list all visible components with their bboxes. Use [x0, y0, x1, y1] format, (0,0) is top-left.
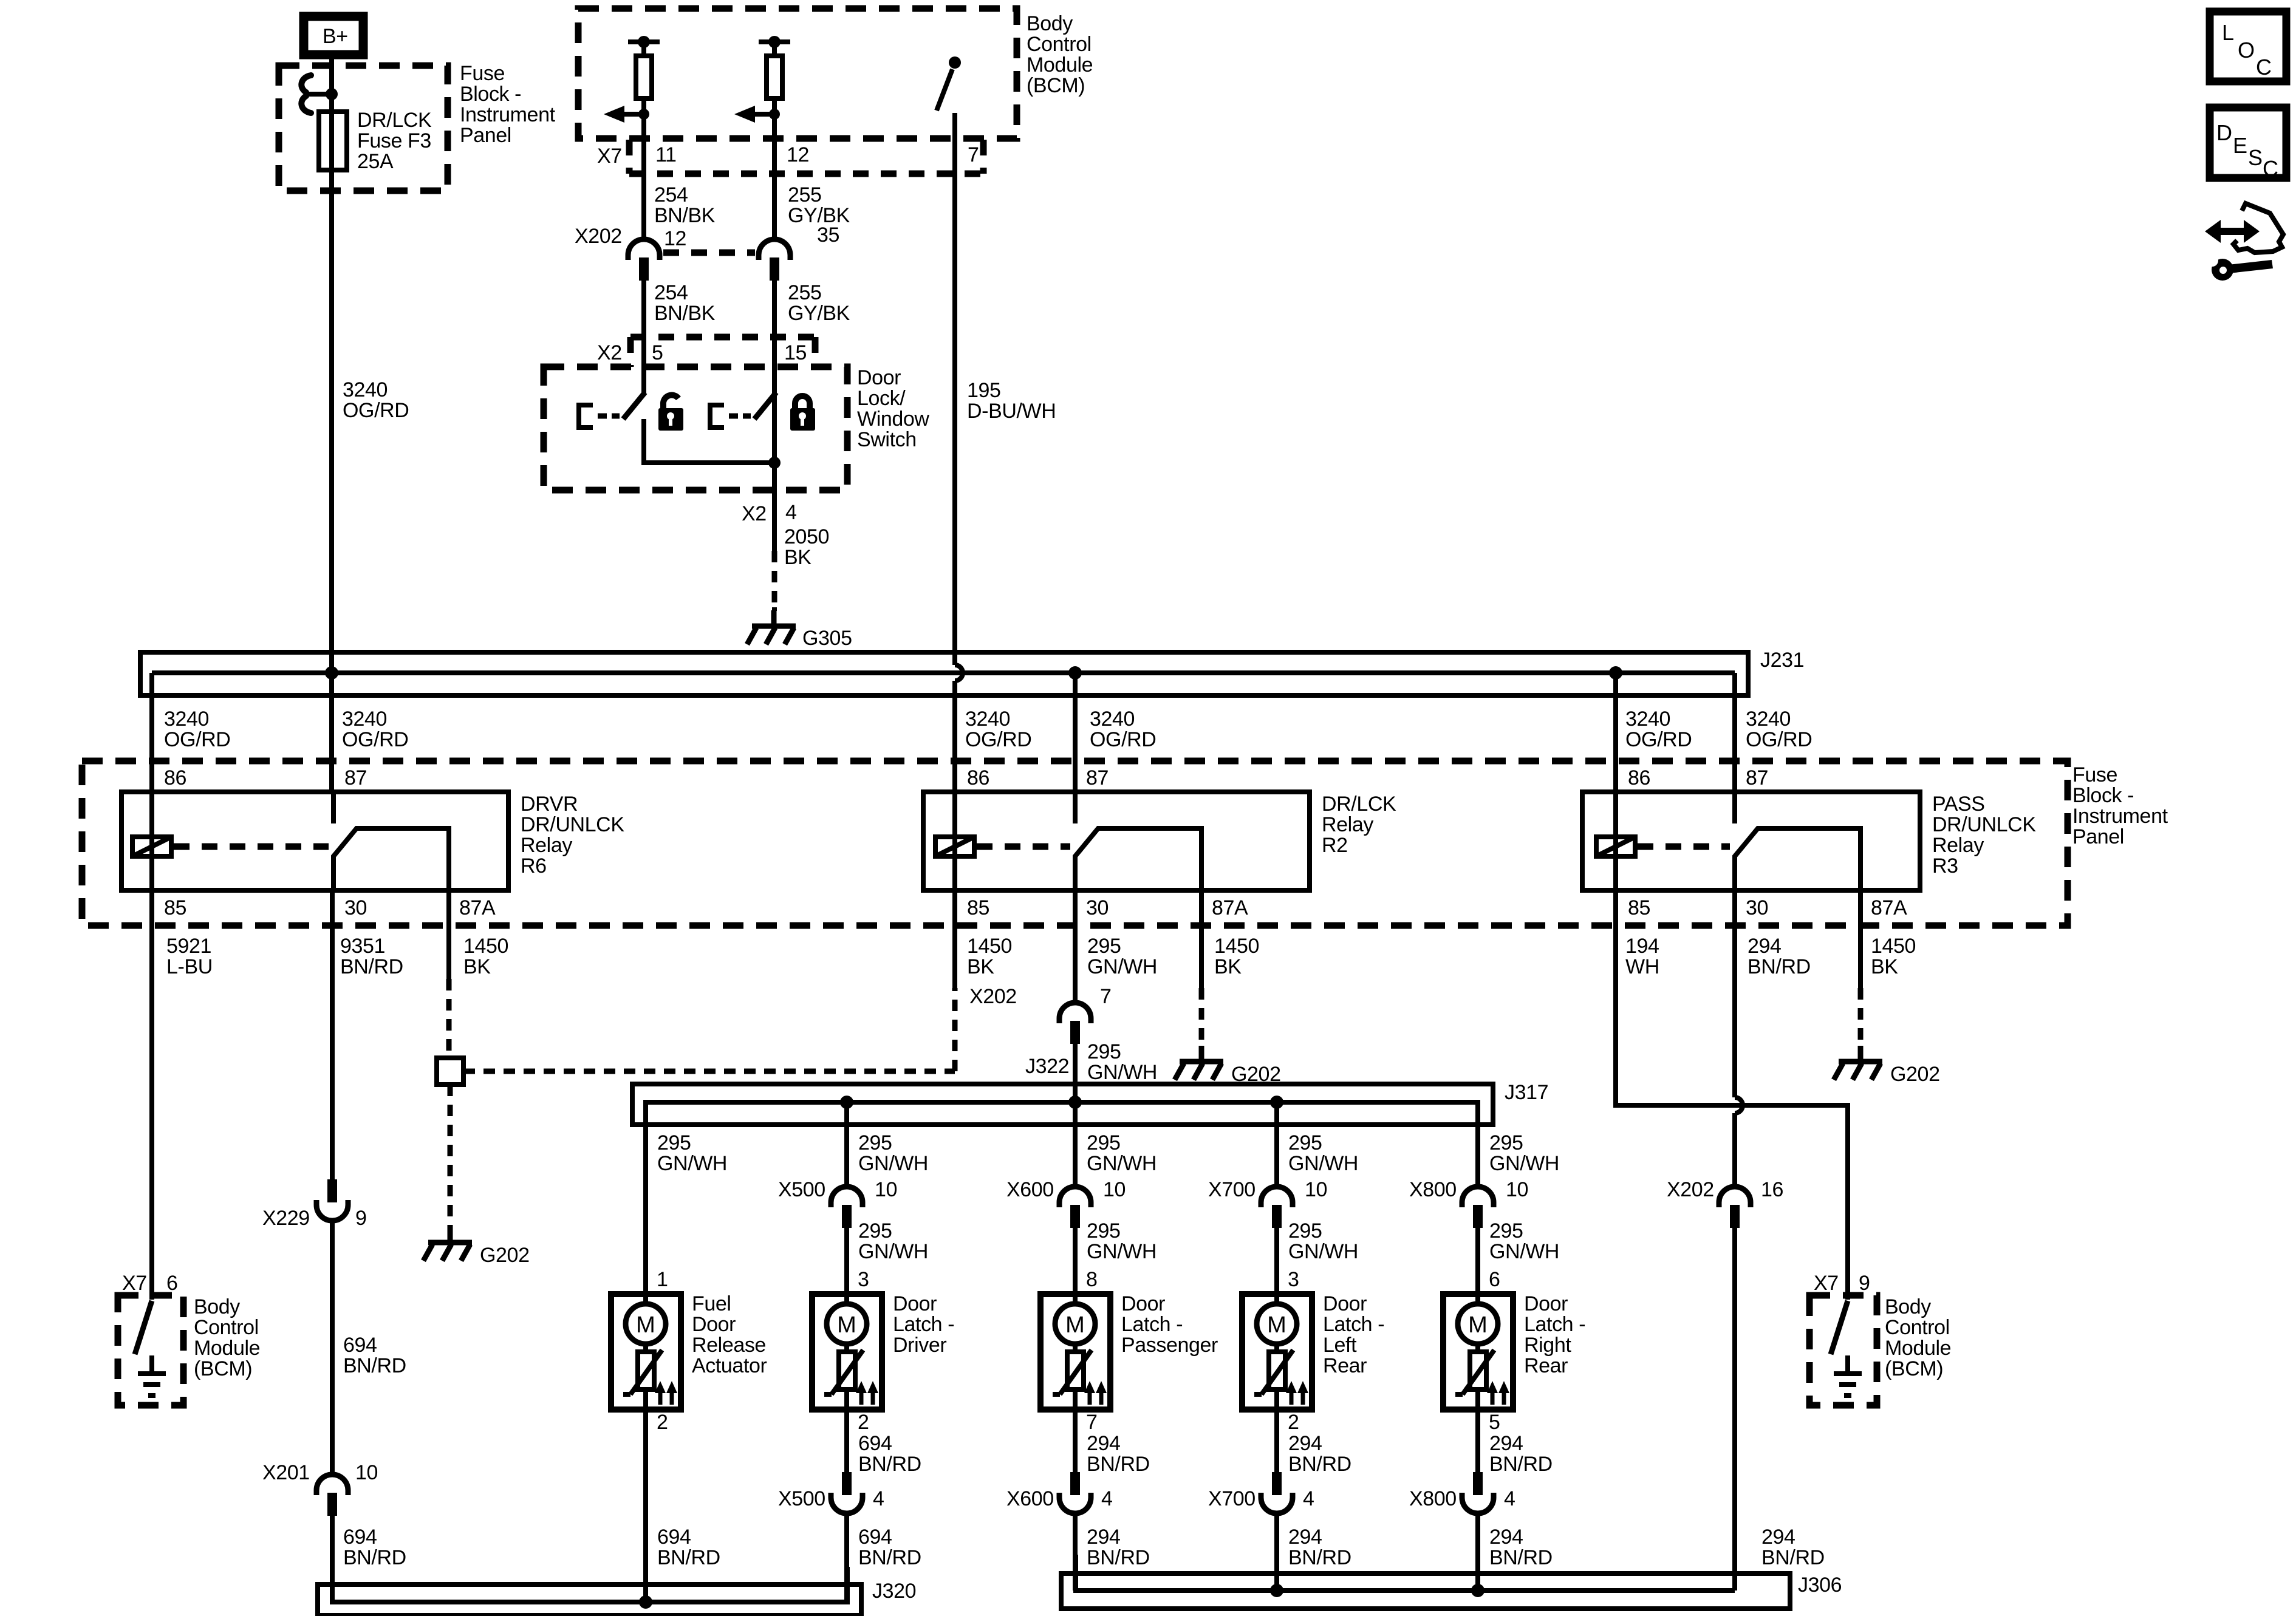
svg-text:Module: Module — [194, 1337, 260, 1360]
svg-text:B+: B+ — [323, 25, 348, 48]
svg-text:86: 86 — [164, 766, 186, 789]
svg-text:BN/RD: BN/RD — [858, 1453, 921, 1476]
svg-text:L: L — [2222, 20, 2234, 45]
svg-text:(BCM): (BCM) — [194, 1357, 252, 1380]
svg-text:6: 6 — [166, 1272, 178, 1295]
svg-text:Fuse: Fuse — [460, 62, 505, 85]
svg-text:G305: G305 — [802, 627, 852, 650]
svg-text:295: 295 — [1087, 1131, 1121, 1154]
svg-text:Right: Right — [1524, 1334, 1571, 1357]
svg-text:X7: X7 — [597, 145, 622, 168]
svg-text:295: 295 — [1087, 935, 1121, 958]
svg-text:694: 694 — [343, 1334, 377, 1357]
svg-text:(BCM): (BCM) — [1885, 1357, 1943, 1380]
svg-text:87: 87 — [1086, 766, 1109, 789]
svg-text:Switch: Switch — [857, 428, 917, 451]
svg-text:BN/RD: BN/RD — [1087, 1453, 1150, 1476]
svg-text:7: 7 — [968, 143, 979, 166]
svg-text:BK: BK — [1214, 955, 1242, 978]
svg-text:Panel: Panel — [2072, 825, 2124, 848]
svg-text:3: 3 — [858, 1268, 869, 1291]
svg-text:7: 7 — [1086, 1411, 1098, 1434]
svg-text:Door: Door — [893, 1292, 937, 1315]
svg-text:X500: X500 — [778, 1487, 825, 1510]
svg-text:WH: WH — [1625, 955, 1659, 978]
svg-text:295: 295 — [1288, 1219, 1322, 1243]
svg-text:BN/BK: BN/BK — [654, 302, 716, 325]
svg-text:BK: BK — [1871, 955, 1898, 978]
svg-text:BK: BK — [967, 955, 994, 978]
svg-text:295: 295 — [1288, 1131, 1322, 1154]
svg-text:C: C — [2256, 55, 2272, 80]
svg-text:Latch -: Latch - — [1524, 1313, 1585, 1336]
svg-text:X2: X2 — [742, 502, 767, 525]
svg-text:Driver: Driver — [893, 1334, 946, 1357]
svg-text:GN/WH: GN/WH — [858, 1240, 928, 1263]
svg-text:GN/WH: GN/WH — [1489, 1152, 1559, 1175]
svg-text:GN/WH: GN/WH — [1087, 1240, 1157, 1263]
svg-text:30: 30 — [344, 896, 367, 919]
svg-text:195: 195 — [967, 379, 1001, 402]
svg-text:10: 10 — [355, 1461, 378, 1484]
svg-text:X600: X600 — [1006, 1178, 1054, 1201]
svg-text:16: 16 — [1761, 1178, 1783, 1201]
svg-text:87A: 87A — [459, 896, 496, 919]
svg-text:GN/WH: GN/WH — [858, 1152, 928, 1175]
svg-text:4: 4 — [1504, 1487, 1515, 1510]
svg-text:X2: X2 — [597, 341, 622, 364]
svg-text:255: 255 — [788, 183, 822, 206]
svg-text:194: 194 — [1625, 935, 1659, 958]
svg-text:J306: J306 — [1798, 1573, 1842, 1597]
svg-text:35: 35 — [817, 223, 839, 247]
svg-text:87: 87 — [344, 766, 367, 789]
svg-text:Relay: Relay — [1322, 813, 1373, 836]
svg-text:OG/RD: OG/RD — [965, 728, 1031, 751]
svg-text:Instrument: Instrument — [460, 103, 556, 126]
svg-text:86: 86 — [1628, 766, 1650, 789]
svg-text:Fuse: Fuse — [2072, 763, 2117, 786]
svg-text:M: M — [1267, 1312, 1286, 1338]
svg-text:OG/RD: OG/RD — [1746, 728, 1812, 751]
svg-text:9351: 9351 — [340, 935, 385, 958]
svg-text:DR/LCK: DR/LCK — [1322, 793, 1396, 816]
svg-text:X202: X202 — [575, 225, 622, 248]
svg-text:694: 694 — [858, 1432, 892, 1455]
svg-text:294: 294 — [1087, 1432, 1121, 1455]
svg-text:X700: X700 — [1208, 1178, 1256, 1201]
svg-text:694: 694 — [343, 1526, 377, 1549]
svg-text:OG/RD: OG/RD — [1090, 728, 1156, 751]
svg-text:BN/RD: BN/RD — [1761, 1546, 1825, 1569]
svg-text:15: 15 — [784, 341, 807, 364]
svg-text:Relay: Relay — [1932, 834, 1984, 857]
svg-text:D-BU/WH: D-BU/WH — [967, 400, 1056, 423]
svg-text:X500: X500 — [778, 1178, 825, 1201]
svg-text:294: 294 — [1288, 1432, 1322, 1455]
svg-text:BN/RD: BN/RD — [1288, 1453, 1351, 1476]
svg-text:25A: 25A — [357, 150, 394, 173]
svg-text:X7: X7 — [1814, 1272, 1839, 1295]
svg-text:85: 85 — [164, 896, 186, 919]
svg-text:Module: Module — [1027, 53, 1093, 77]
svg-text:Module: Module — [1885, 1337, 1951, 1360]
svg-text:Door: Door — [1323, 1292, 1367, 1315]
svg-text:J320: J320 — [872, 1580, 916, 1603]
svg-text:7: 7 — [1100, 985, 1112, 1008]
svg-text:BN/RD: BN/RD — [343, 1546, 406, 1569]
svg-text:OG/RD: OG/RD — [342, 728, 408, 751]
svg-text:BN/RD: BN/RD — [1489, 1453, 1553, 1476]
svg-text:3240: 3240 — [1090, 707, 1135, 731]
svg-text:5921: 5921 — [166, 935, 211, 958]
svg-text:Lock/: Lock/ — [857, 387, 906, 410]
svg-text:3240: 3240 — [342, 707, 387, 731]
svg-text:86: 86 — [967, 766, 989, 789]
svg-text:BN/RD: BN/RD — [657, 1546, 720, 1569]
svg-text:3: 3 — [1288, 1268, 1299, 1291]
svg-text:Block -: Block - — [2072, 784, 2134, 807]
svg-text:M: M — [1468, 1312, 1488, 1338]
svg-text:11: 11 — [655, 143, 677, 166]
svg-text:Fuel: Fuel — [692, 1292, 731, 1315]
svg-text:87: 87 — [1746, 766, 1768, 789]
svg-text:OG/RD: OG/RD — [164, 728, 230, 751]
svg-text:10: 10 — [875, 1178, 897, 1201]
svg-text:295: 295 — [858, 1219, 892, 1243]
svg-text:G202: G202 — [1890, 1063, 1940, 1086]
svg-text:295: 295 — [1087, 1040, 1121, 1063]
svg-text:87A: 87A — [1871, 896, 1907, 919]
svg-text:8: 8 — [1086, 1268, 1098, 1291]
svg-text:Control: Control — [1885, 1316, 1950, 1339]
svg-text:Fuse F3: Fuse F3 — [357, 129, 431, 152]
svg-text:Control: Control — [194, 1316, 259, 1339]
svg-text:G202: G202 — [480, 1244, 530, 1267]
svg-text:Instrument: Instrument — [2072, 805, 2168, 828]
svg-text:Relay: Relay — [521, 834, 572, 857]
svg-text:BN/BK: BN/BK — [654, 204, 716, 227]
svg-text:9: 9 — [355, 1207, 367, 1230]
svg-text:3240: 3240 — [343, 378, 388, 401]
svg-text:85: 85 — [1628, 896, 1650, 919]
svg-text:Door: Door — [857, 366, 901, 389]
svg-text:BN/RD: BN/RD — [1489, 1546, 1553, 1569]
svg-text:294: 294 — [1489, 1432, 1523, 1455]
svg-text:X800: X800 — [1409, 1487, 1457, 1510]
svg-text:3240: 3240 — [164, 707, 209, 731]
svg-text:4: 4 — [785, 501, 797, 524]
svg-text:M: M — [1065, 1312, 1085, 1338]
svg-text:BN/RD: BN/RD — [1288, 1546, 1351, 1569]
svg-text:30: 30 — [1746, 896, 1768, 919]
svg-text:GN/WH: GN/WH — [1087, 1152, 1157, 1175]
svg-text:294: 294 — [1748, 935, 1782, 958]
svg-text:GN/WH: GN/WH — [1288, 1152, 1358, 1175]
svg-text:1450: 1450 — [967, 935, 1012, 958]
svg-text:J231: J231 — [1760, 649, 1804, 672]
svg-text:Latch -: Latch - — [1323, 1313, 1384, 1336]
svg-text:10: 10 — [1103, 1178, 1126, 1201]
svg-text:R2: R2 — [1322, 834, 1348, 857]
svg-text:1450: 1450 — [1214, 935, 1259, 958]
svg-text:X7: X7 — [122, 1272, 147, 1295]
svg-text:6: 6 — [1489, 1268, 1500, 1291]
svg-text:BK: BK — [784, 546, 811, 569]
svg-text:4: 4 — [1101, 1487, 1113, 1510]
svg-text:DR/LCK: DR/LCK — [357, 109, 432, 132]
svg-text:GN/WH: GN/WH — [1087, 1061, 1157, 1084]
svg-text:Body: Body — [1885, 1295, 1931, 1318]
svg-text:2: 2 — [657, 1411, 668, 1434]
svg-text:BN/RD: BN/RD — [343, 1354, 406, 1377]
svg-text:M: M — [837, 1312, 856, 1338]
svg-text:12: 12 — [664, 227, 686, 250]
svg-text:Release: Release — [692, 1334, 766, 1357]
svg-text:DR/UNLCK: DR/UNLCK — [1932, 813, 2036, 836]
svg-text:1: 1 — [657, 1268, 668, 1291]
svg-text:694: 694 — [657, 1526, 691, 1549]
svg-text:294: 294 — [1087, 1526, 1121, 1549]
svg-text:Latch -: Latch - — [1121, 1313, 1183, 1336]
svg-text:GN/WH: GN/WH — [1087, 955, 1157, 978]
svg-text:Block -: Block - — [460, 83, 521, 106]
svg-text:BK: BK — [463, 955, 491, 978]
svg-text:254: 254 — [654, 183, 688, 206]
svg-text:X202: X202 — [969, 985, 1017, 1008]
svg-text:GY/BK: GY/BK — [788, 302, 850, 325]
svg-text:2050: 2050 — [784, 525, 829, 548]
svg-text:12: 12 — [787, 143, 809, 166]
svg-text:Actuator: Actuator — [692, 1354, 767, 1377]
svg-text:S: S — [2248, 145, 2263, 170]
svg-text:E: E — [2233, 133, 2247, 158]
svg-text:3240: 3240 — [1625, 707, 1670, 731]
svg-text:OG/RD: OG/RD — [343, 399, 409, 422]
svg-text:O: O — [2238, 38, 2255, 63]
svg-text:OG/RD: OG/RD — [1625, 728, 1692, 751]
svg-text:295: 295 — [858, 1131, 892, 1154]
svg-text:4: 4 — [873, 1487, 884, 1510]
svg-text:Panel: Panel — [460, 124, 511, 147]
svg-text:D: D — [2216, 120, 2232, 145]
svg-text:GN/WH: GN/WH — [657, 1152, 727, 1175]
svg-text:10: 10 — [1305, 1178, 1327, 1201]
svg-text:X800: X800 — [1409, 1178, 1457, 1201]
svg-text:254: 254 — [654, 281, 688, 304]
svg-text:DRVR: DRVR — [521, 793, 578, 816]
svg-text:Door: Door — [1121, 1292, 1165, 1315]
svg-text:295: 295 — [657, 1131, 691, 1154]
svg-text:294: 294 — [1288, 1526, 1322, 1549]
svg-text:BN/RD: BN/RD — [1748, 955, 1811, 978]
svg-text:30: 30 — [1086, 896, 1109, 919]
svg-text:9: 9 — [1859, 1272, 1870, 1295]
svg-text:295: 295 — [1087, 1219, 1121, 1243]
svg-text:5: 5 — [652, 341, 663, 364]
svg-text:Control: Control — [1027, 33, 1092, 56]
svg-text:Latch -: Latch - — [893, 1313, 954, 1336]
svg-text:BN/RD: BN/RD — [858, 1546, 921, 1569]
svg-text:R6: R6 — [521, 854, 547, 878]
svg-text:J322: J322 — [1025, 1055, 1069, 1078]
svg-text:GN/WH: GN/WH — [1288, 1240, 1358, 1263]
svg-text:694: 694 — [858, 1526, 892, 1549]
svg-text:L-BU: L-BU — [166, 955, 213, 978]
svg-text:294: 294 — [1489, 1526, 1523, 1549]
svg-text:255: 255 — [788, 281, 822, 304]
svg-text:X700: X700 — [1208, 1487, 1256, 1510]
svg-text:C: C — [2263, 156, 2278, 181]
svg-text:X600: X600 — [1006, 1487, 1054, 1510]
svg-text:5: 5 — [1489, 1411, 1500, 1434]
svg-text:Body: Body — [194, 1295, 240, 1318]
svg-text:BN/RD: BN/RD — [340, 955, 403, 978]
svg-text:Window: Window — [857, 407, 929, 431]
svg-text:2: 2 — [858, 1411, 869, 1434]
svg-text:295: 295 — [1489, 1219, 1523, 1243]
svg-text:GN/WH: GN/WH — [1489, 1240, 1559, 1263]
svg-text:2: 2 — [1288, 1411, 1299, 1434]
svg-text:M: M — [636, 1312, 655, 1338]
svg-text:3240: 3240 — [965, 707, 1010, 731]
svg-text:3240: 3240 — [1746, 707, 1791, 731]
svg-text:BN/RD: BN/RD — [1087, 1546, 1150, 1569]
svg-text:85: 85 — [967, 896, 989, 919]
svg-text:(BCM): (BCM) — [1027, 74, 1085, 97]
svg-text:Rear: Rear — [1323, 1354, 1367, 1377]
svg-text:J317: J317 — [1505, 1081, 1548, 1104]
svg-text:X229: X229 — [262, 1207, 310, 1230]
svg-text:Door: Door — [1524, 1292, 1568, 1315]
svg-text:Door: Door — [692, 1313, 736, 1336]
svg-text:X201: X201 — [262, 1461, 310, 1484]
svg-text:87A: 87A — [1212, 896, 1248, 919]
svg-text:295: 295 — [1489, 1131, 1523, 1154]
svg-text:Passenger: Passenger — [1121, 1334, 1218, 1357]
svg-text:DR/UNLCK: DR/UNLCK — [521, 813, 624, 836]
svg-text:1450: 1450 — [1871, 935, 1916, 958]
svg-text:PASS: PASS — [1932, 793, 1985, 816]
svg-text:1450: 1450 — [463, 935, 508, 958]
svg-text:Left: Left — [1323, 1334, 1357, 1357]
svg-text:10: 10 — [1506, 1178, 1528, 1201]
svg-text:X202: X202 — [1667, 1178, 1714, 1201]
svg-text:Rear: Rear — [1524, 1354, 1568, 1377]
svg-text:294: 294 — [1761, 1526, 1795, 1549]
svg-text:R3: R3 — [1932, 854, 1958, 878]
svg-text:4: 4 — [1303, 1487, 1314, 1510]
svg-text:Body: Body — [1027, 12, 1073, 35]
